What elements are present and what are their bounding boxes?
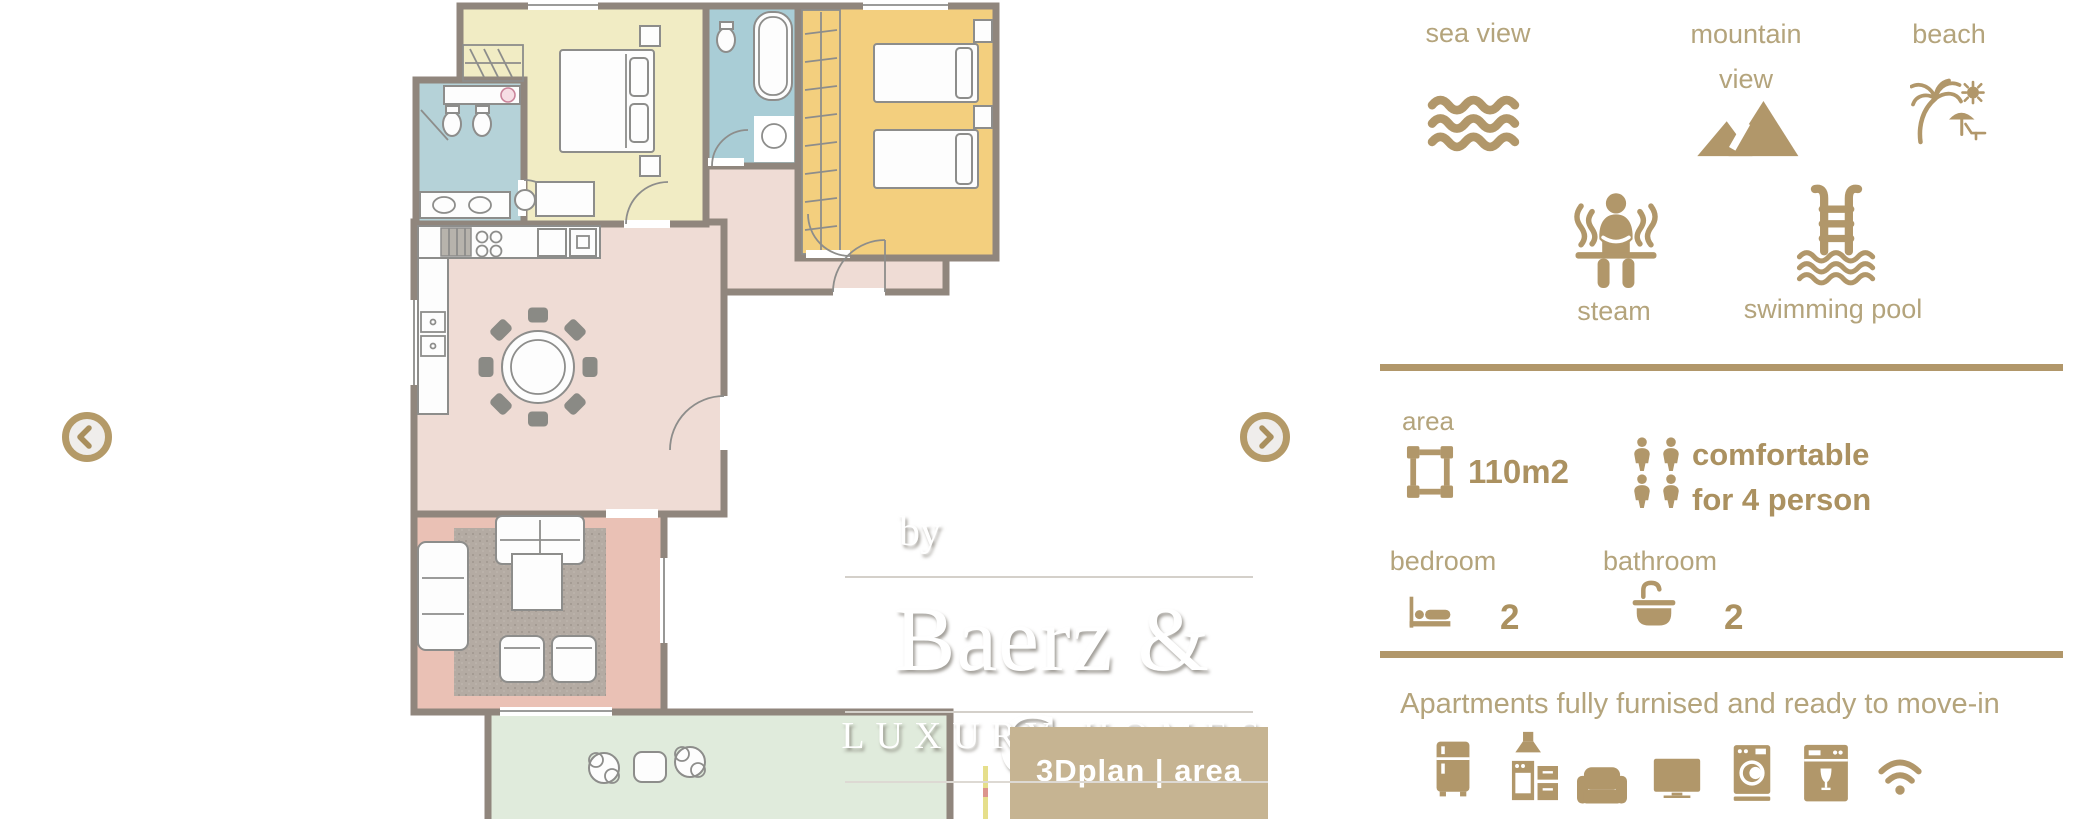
carousel-next-button[interactable] <box>1240 412 1290 462</box>
watermark-badge-label: 3Dplan | area <box>1010 753 1268 789</box>
chevron-right-icon <box>1249 421 1281 453</box>
capacity-line1: comfortable <box>1692 432 1871 477</box>
pool-ladder-icon <box>1793 177 1880 289</box>
feature-label-steam: steam <box>1534 289 1694 334</box>
carousel-prev-button[interactable] <box>62 412 112 462</box>
listing-carousel-slide: by Baerz & Co LUXURY HOMES 3Dplan | area… <box>0 0 2095 819</box>
bedroom-count: 2 <box>1500 598 1519 638</box>
feature-label-mountain-view: mountain view <box>1666 12 1826 102</box>
capacity-line2: for 4 person <box>1692 477 1871 522</box>
chevron-left-icon <box>71 421 103 453</box>
feature-label-beach: beach <box>1869 12 2029 57</box>
beach-icon <box>1910 76 1988 148</box>
sofa-icon <box>1577 763 1627 806</box>
panel-divider-bottom <box>1380 651 2063 658</box>
mountains-icon <box>1685 90 1807 158</box>
watermark-rule-middle <box>845 711 1253 713</box>
feature-label-sea-view: sea view <box>1398 11 1558 56</box>
watermark-rule-top <box>845 576 1253 578</box>
feature-label-swimming-pool: swimming pool <box>1743 287 1923 332</box>
four-persons-icon <box>1630 437 1683 508</box>
furnished-note: Apartments fully furnised and ready to m… <box>1380 688 2020 721</box>
waves-icon <box>1423 95 1535 152</box>
watermark-by: by <box>870 508 970 556</box>
tv-icon <box>1652 757 1702 798</box>
watermark-rule-bottom <box>845 781 1268 783</box>
watermark-badge-box: 3Dplan | area <box>1010 727 1268 819</box>
bath-icon <box>1631 577 1677 633</box>
bedroom-label: bedroom <box>1388 546 1498 576</box>
washing-machine-icon <box>1732 743 1772 803</box>
dishwasher-icon <box>1802 743 1850 805</box>
area-value: 110m2 <box>1468 453 1569 491</box>
area-icon <box>1406 440 1454 504</box>
bathroom-count: 2 <box>1724 598 1743 638</box>
kitchen-stove-icon <box>1500 730 1558 802</box>
capacity-text: comfortable for 4 person <box>1692 432 1871 522</box>
bed-icon <box>1408 593 1452 633</box>
steam-icon <box>1570 184 1662 289</box>
area-label: area <box>1388 406 1468 436</box>
wifi-icon <box>1877 757 1923 796</box>
panel-divider-top <box>1380 364 2063 371</box>
bathroom-label: bathroom <box>1600 546 1720 576</box>
fridge-icon <box>1435 740 1471 798</box>
